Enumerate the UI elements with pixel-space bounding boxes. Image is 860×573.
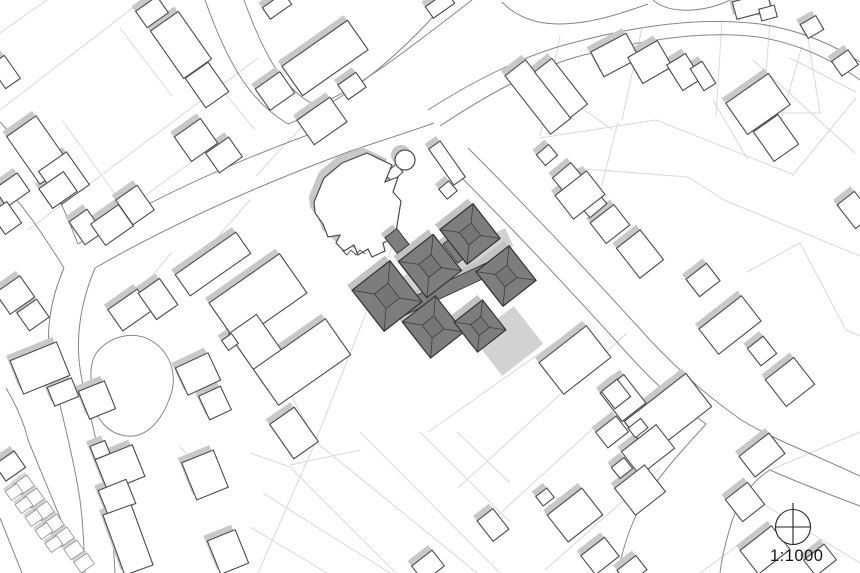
church-round-tower xyxy=(395,150,415,170)
building-footprint xyxy=(429,141,466,185)
scale-label: 1:1000 xyxy=(770,547,823,565)
building-footprint xyxy=(0,55,20,88)
parcel-line xyxy=(258,450,312,573)
parcel-line xyxy=(420,432,510,522)
road-edge xyxy=(502,2,648,24)
parcel-line xyxy=(263,493,390,573)
parcel-line xyxy=(250,453,290,467)
building-footprint xyxy=(547,488,603,542)
building-footprint xyxy=(765,358,814,407)
parcel-line xyxy=(317,443,477,573)
site-plan-svg: 1:1000 xyxy=(0,0,860,573)
parcel-line xyxy=(688,177,724,200)
building-footprint xyxy=(581,537,619,573)
building-footprint xyxy=(539,326,611,394)
road-edge xyxy=(653,0,730,10)
parcel-line xyxy=(457,432,510,483)
building-footprint xyxy=(0,202,22,235)
parcel-line xyxy=(747,243,800,272)
parcel-line xyxy=(792,98,856,176)
north-arrow-icon xyxy=(776,503,811,545)
site-plan: 1:1000 xyxy=(0,0,860,573)
building-footprint xyxy=(297,97,347,145)
road-edge xyxy=(0,518,22,573)
parcel-line xyxy=(800,243,846,330)
parcel-line xyxy=(0,0,143,110)
parcel-line xyxy=(0,0,47,33)
parcel-line xyxy=(846,330,860,336)
